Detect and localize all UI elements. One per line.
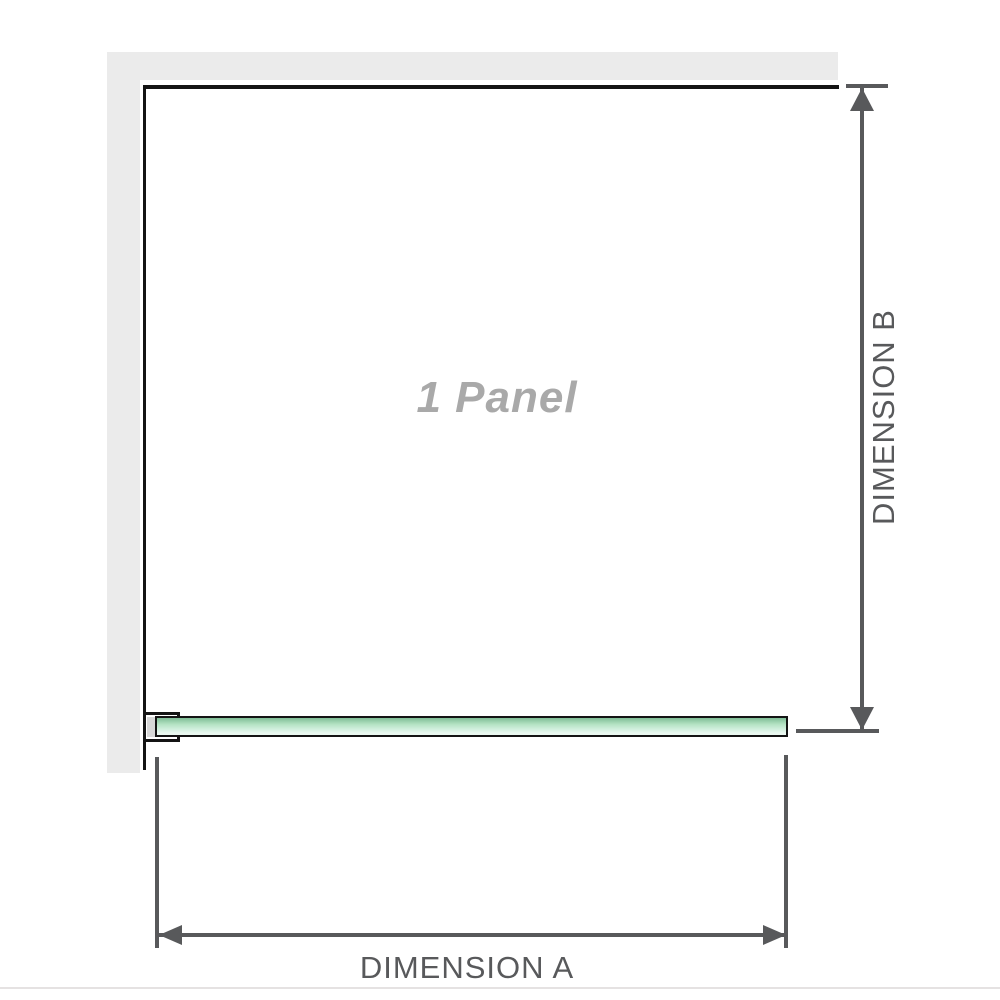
dimension-a-line — [159, 933, 786, 937]
dimension-a-label: DIMENSION A — [317, 950, 617, 986]
dimension-a-extension-left — [155, 757, 159, 948]
panel-outline-top — [143, 85, 839, 89]
wall-top — [107, 52, 838, 80]
dimension-b-line — [860, 87, 864, 730]
glass-panel-bar — [155, 716, 788, 737]
arrowhead-left-icon — [159, 925, 182, 945]
arrowhead-up-icon — [850, 88, 874, 111]
panel-count-label: 1 Panel — [347, 372, 647, 424]
arrowhead-right-icon — [763, 925, 786, 945]
image-baseline — [0, 987, 1000, 989]
dimension-b-label: DIMENSION B — [867, 295, 901, 539]
panel-outline-left — [143, 85, 146, 770]
panel-dimension-diagram: 1 Panel DIMENSION B DIMENSION A — [0, 0, 1000, 1000]
arrowhead-down-icon — [850, 707, 874, 730]
dimension-a-extension-right — [784, 755, 788, 948]
wall-left — [107, 52, 140, 773]
